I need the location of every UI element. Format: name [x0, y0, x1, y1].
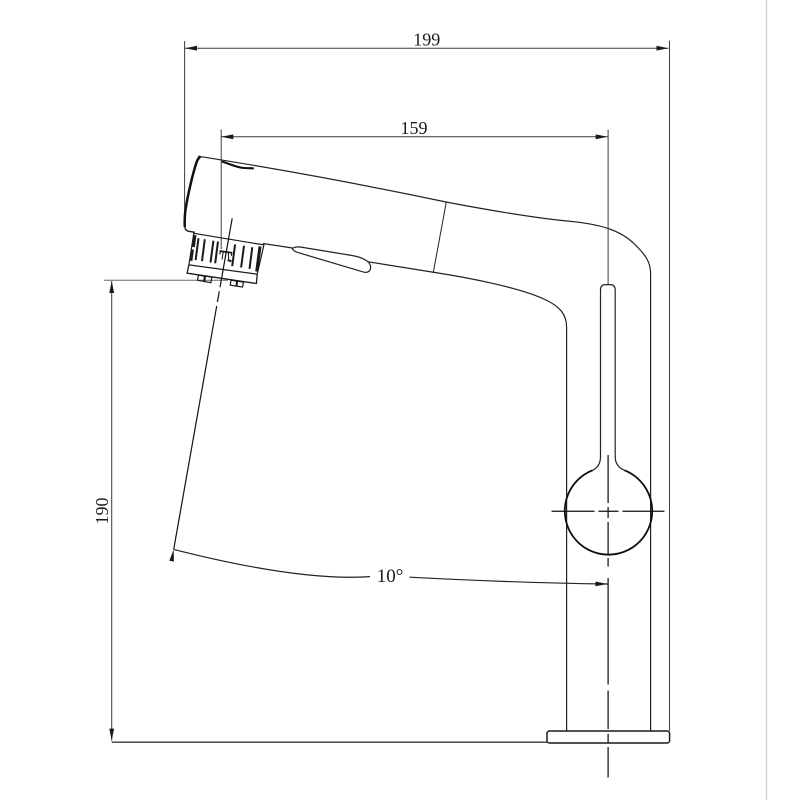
- svg-text:10°: 10°: [377, 566, 404, 587]
- svg-text:159: 159: [401, 118, 428, 138]
- svg-text:199: 199: [413, 30, 440, 50]
- svg-text:190: 190: [92, 498, 112, 525]
